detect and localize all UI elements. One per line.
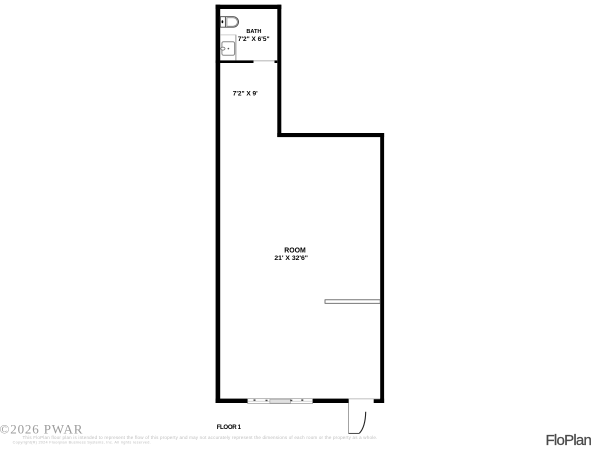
svg-text:FloPlan: FloPlan xyxy=(546,432,592,449)
svg-text:BATH: BATH xyxy=(246,29,261,35)
svg-text:This FloPlan floor plan is int: This FloPlan floor plan is intended to r… xyxy=(22,435,377,440)
svg-text:7'2" X 9': 7'2" X 9' xyxy=(233,91,258,98)
svg-text:FLOOR 1: FLOOR 1 xyxy=(217,424,242,431)
svg-text:7'2" X 6'5": 7'2" X 6'5" xyxy=(238,36,270,43)
svg-text:Copyright(R) 2024 Floorplan Bu: Copyright(R) 2024 Floorplan Business Sys… xyxy=(13,441,151,445)
svg-text:21' X 32'6": 21' X 32'6" xyxy=(274,255,308,262)
svg-text:ROOM: ROOM xyxy=(284,248,306,255)
